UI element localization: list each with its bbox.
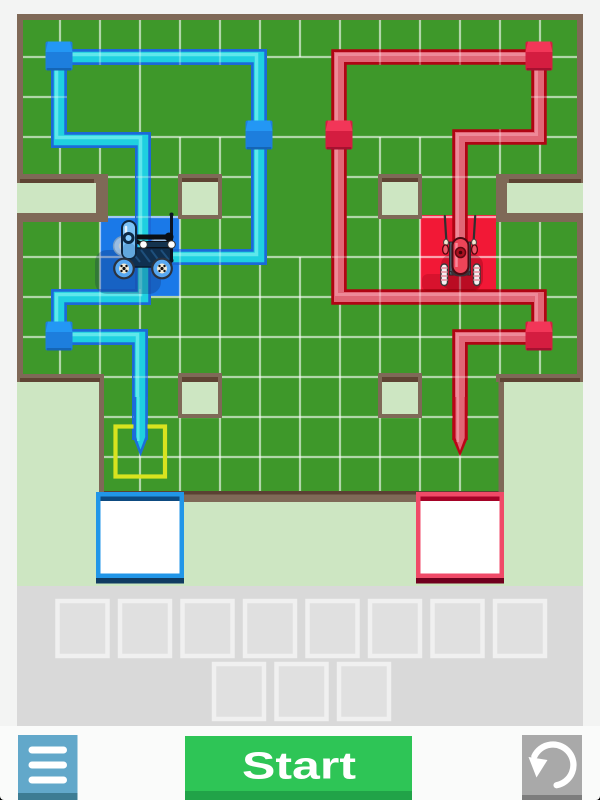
svg-text:Start: Start: [242, 746, 356, 788]
